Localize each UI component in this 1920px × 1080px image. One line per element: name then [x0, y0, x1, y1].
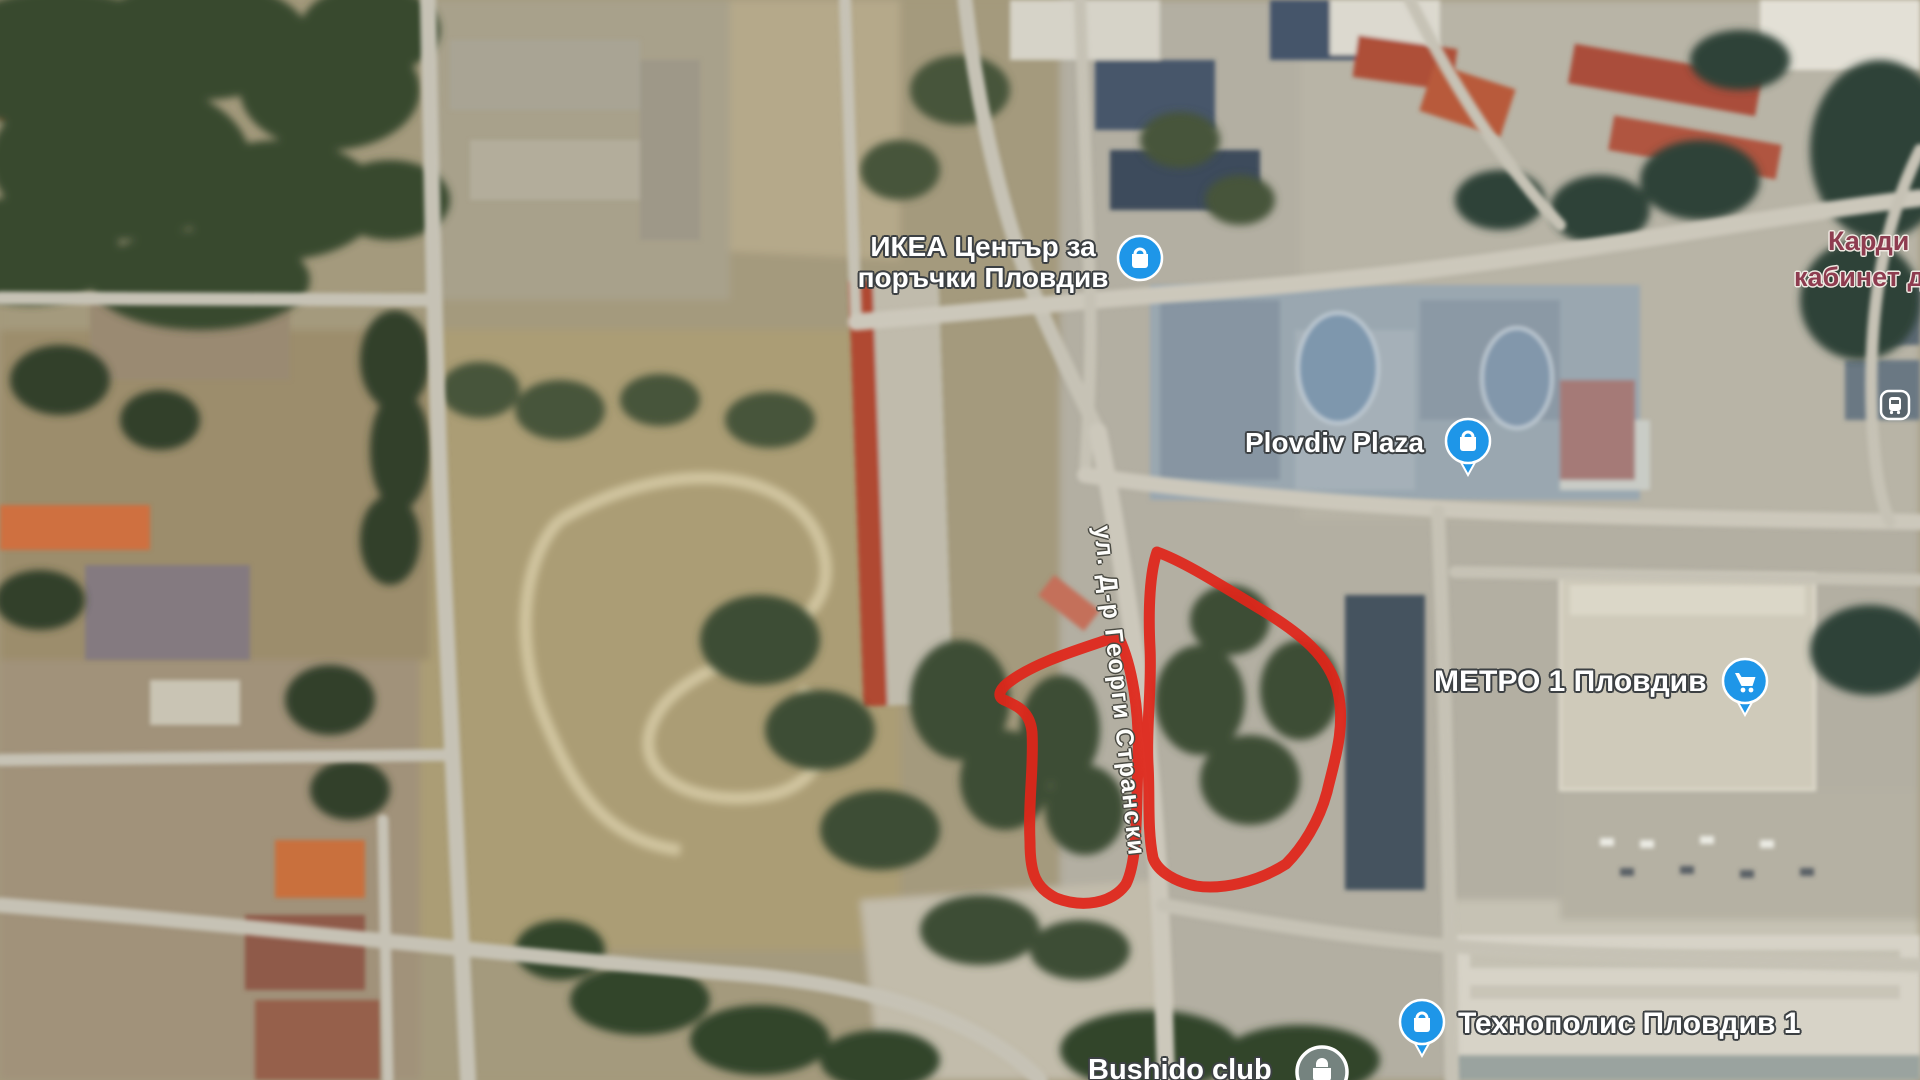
map-canvas[interactable]: ул. Д-р Георги Странски ИКЕА Център за п…: [0, 0, 1920, 1080]
poi-label-bushido[interactable]: Bushido club: [1088, 1055, 1272, 1080]
poi-label-cardio-line2[interactable]: кабинет д: [1794, 262, 1920, 293]
bus-stop-icon[interactable]: [1878, 388, 1912, 422]
poi-label-cardio-line1[interactable]: Карди: [1828, 226, 1909, 257]
shopping-bag-pin-icon[interactable]: [1442, 415, 1494, 477]
shopping-cart-pin-icon[interactable]: [1719, 655, 1771, 717]
satellite-imagery: [0, 0, 1920, 1080]
poi-label-plovdiv-plaza[interactable]: Plovdiv Plaza: [1245, 428, 1424, 459]
poi-label-ikea-line1: ИКЕА Център за: [838, 232, 1128, 263]
poi-label-ikea-line2: поръчки Пловдив: [838, 263, 1128, 294]
poi-label-ikea[interactable]: ИКЕА Център за поръчки Пловдив: [838, 232, 1128, 294]
poi-label-metro[interactable]: МЕТРО 1 Пловдив: [1434, 665, 1707, 698]
poi-circle-icon[interactable]: [1292, 1042, 1352, 1080]
shopping-bag-pin-icon[interactable]: [1396, 996, 1448, 1058]
poi-label-technopolis[interactable]: Технополис Пловдив 1: [1458, 1007, 1800, 1040]
shopping-bag-icon[interactable]: [1114, 232, 1166, 284]
